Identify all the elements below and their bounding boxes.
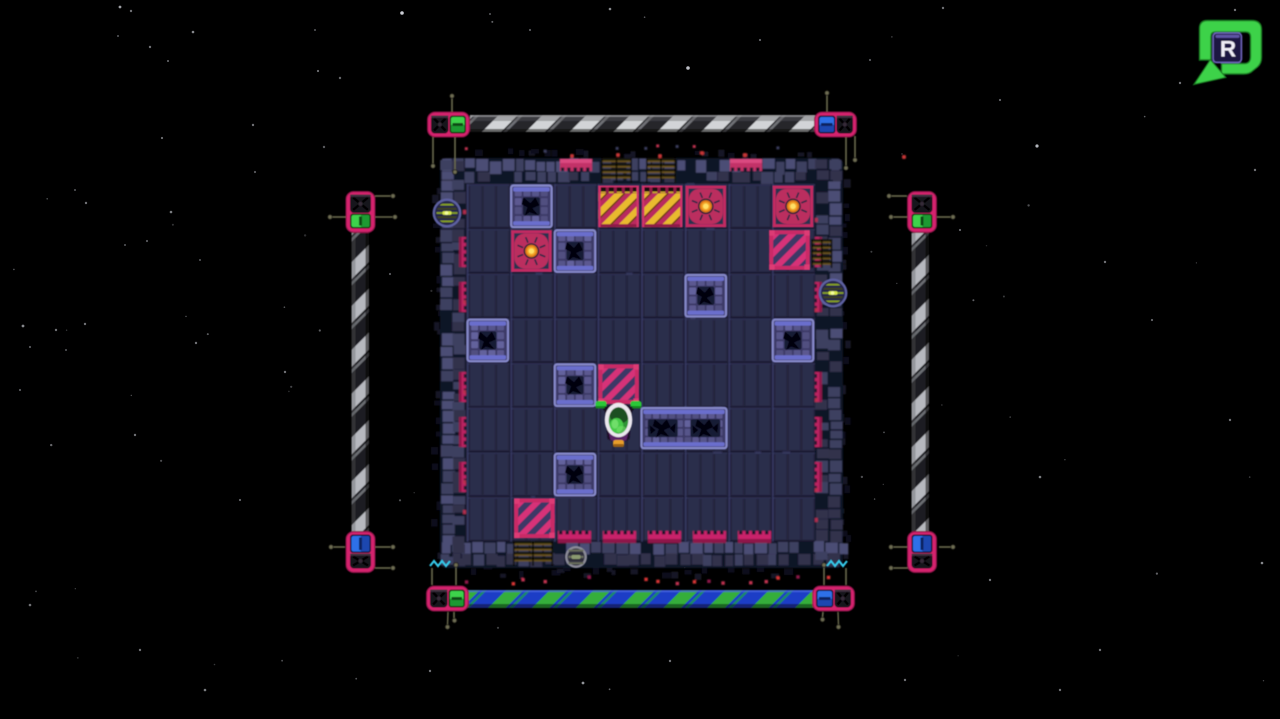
svg-text:R: R — [1220, 37, 1236, 62]
